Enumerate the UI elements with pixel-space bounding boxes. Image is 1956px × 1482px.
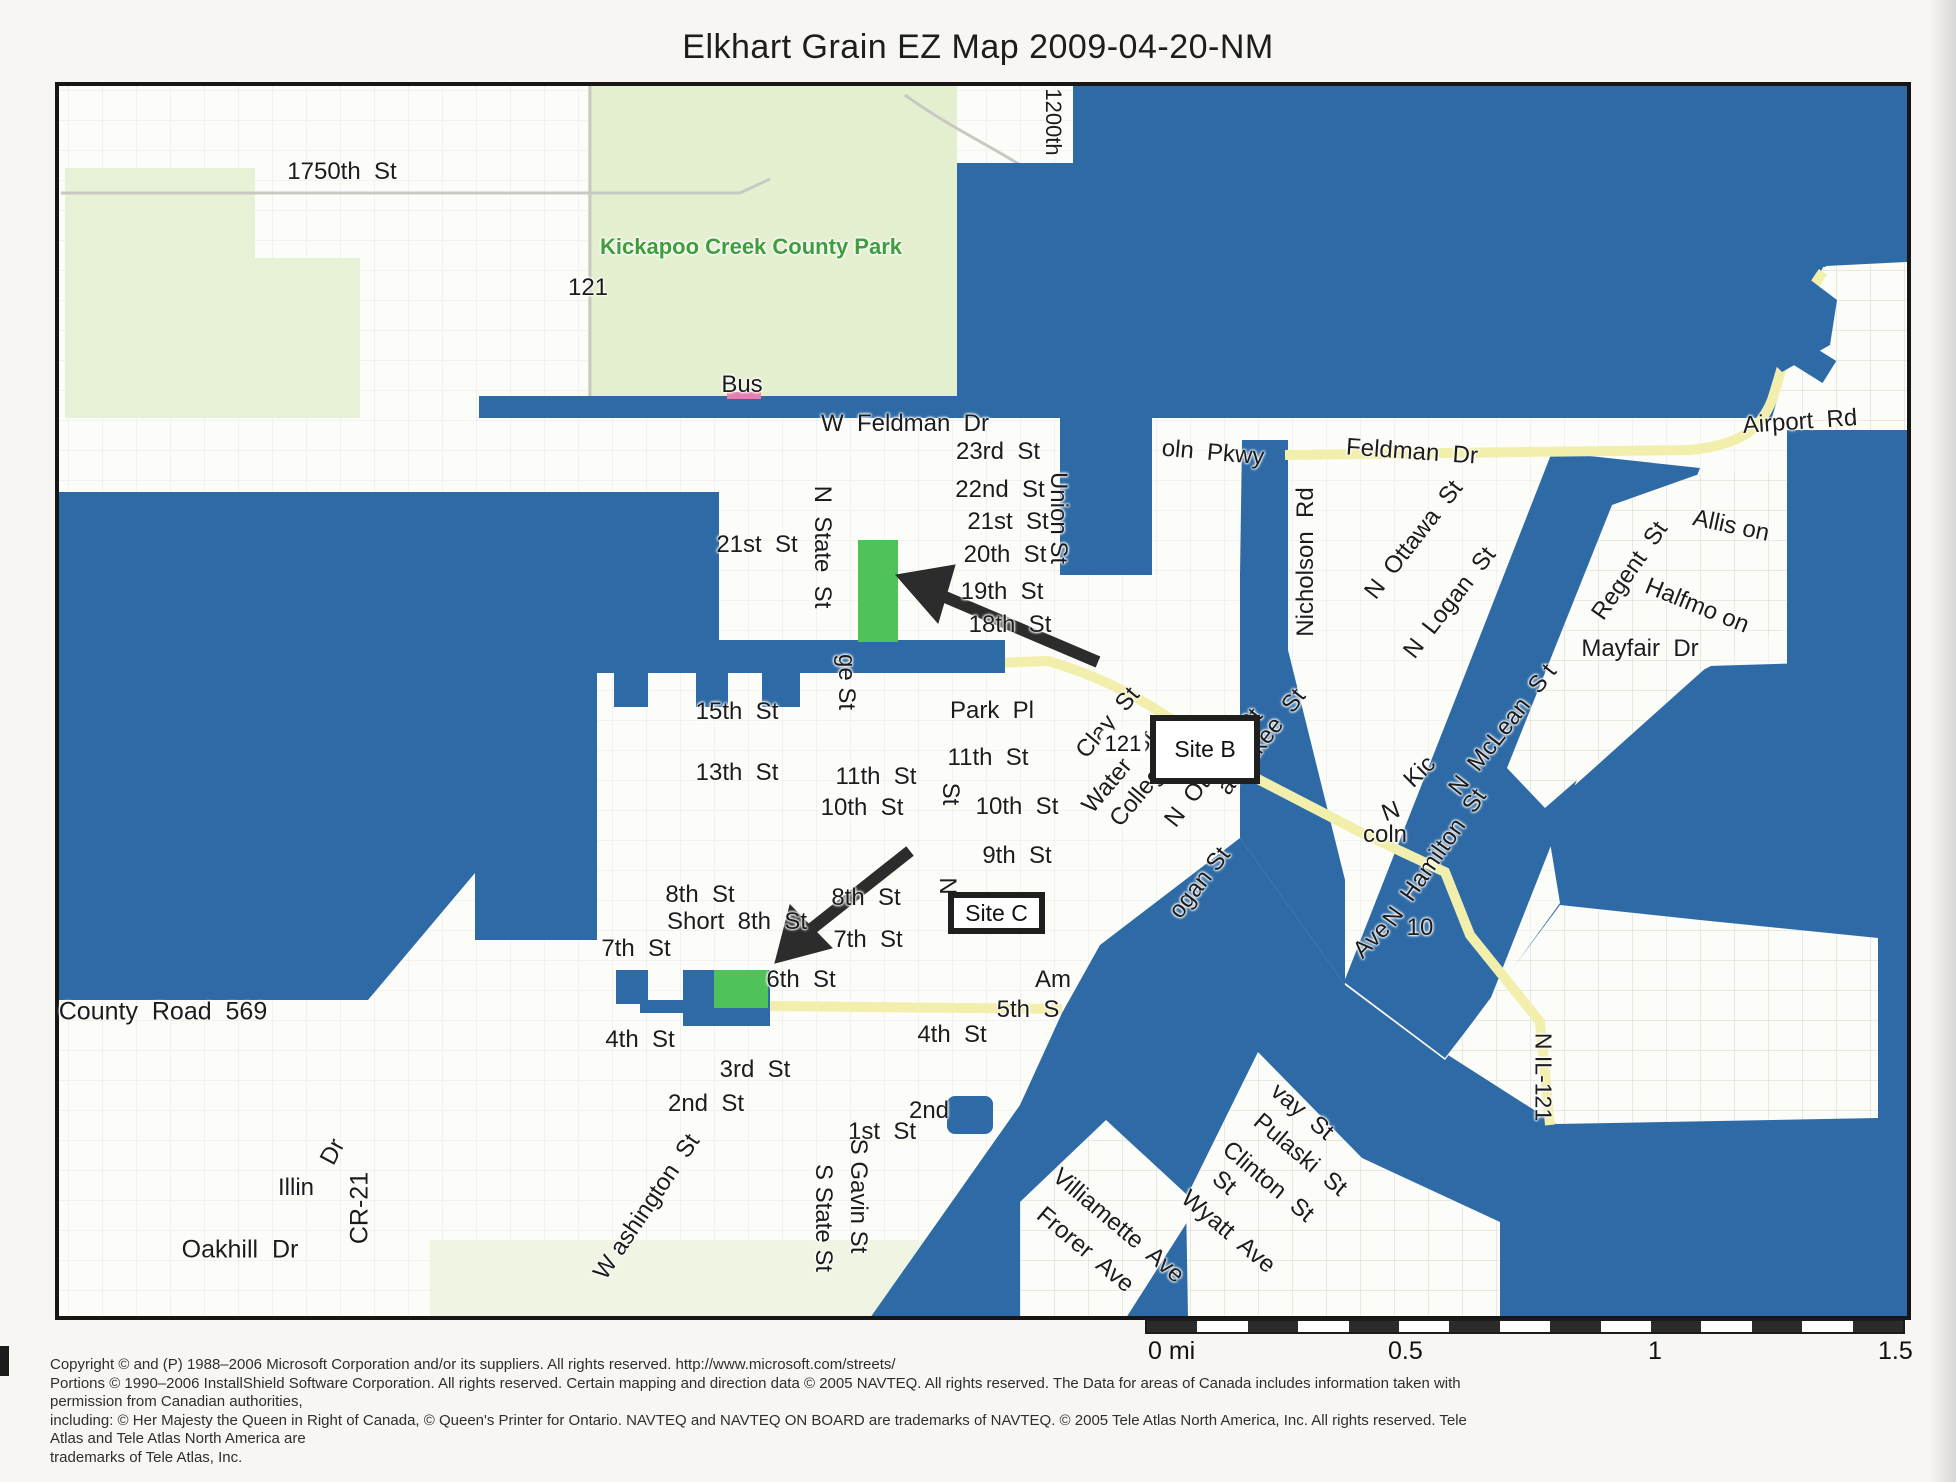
street-label: 21st St xyxy=(716,533,797,557)
street-label: 15th St xyxy=(696,700,779,724)
street-label: N State St xyxy=(810,486,834,609)
street-label: 11th St xyxy=(836,765,917,789)
street-label: 5th S xyxy=(997,998,1060,1022)
street-label: 1750th St xyxy=(287,160,396,184)
street-label: County Road 569 xyxy=(59,1000,267,1025)
page-title: Elkhart Grain EZ Map 2009-04-20-NM xyxy=(0,28,1956,67)
copyright-line: including: © Her Majesty the Queen in Ri… xyxy=(50,1412,1480,1449)
scale-cell xyxy=(1147,1321,1197,1332)
street-label: 9th St xyxy=(982,844,1051,868)
street-label: N IL-121 xyxy=(1532,1033,1555,1121)
street-label: 1200th xyxy=(1042,88,1064,155)
scale-bar xyxy=(1145,1319,1905,1334)
page-curl-shadow xyxy=(1930,0,1956,1482)
scale-cell xyxy=(1248,1321,1298,1332)
street-label: 13th St xyxy=(696,761,779,785)
street-label: Kickapoo Creek County Park xyxy=(600,236,902,258)
copyright-line: trademarks of Tele Atlas, Inc. xyxy=(50,1449,1480,1468)
scale-bar-cells xyxy=(1145,1319,1905,1334)
site-b-area xyxy=(858,540,898,642)
copyright-text: Copyright © and (P) 1988–2006 Microsoft … xyxy=(50,1356,1480,1467)
street-label: 19th St xyxy=(961,580,1044,604)
copyright-line: Portions © 1990–2006 InstallShield Softw… xyxy=(50,1375,1480,1412)
street-label: 10th St xyxy=(976,795,1059,819)
street-label: 2nd St xyxy=(668,1092,744,1116)
street-label: 8th St xyxy=(831,886,900,910)
street-label: Short 8th St xyxy=(667,910,807,934)
street-label: Mayfair Dr xyxy=(1581,637,1698,661)
street-label: 23rd St xyxy=(956,440,1040,464)
street-label: 10 xyxy=(1407,916,1434,940)
street-label: 18th St xyxy=(969,613,1052,637)
scale-cell xyxy=(1601,1321,1651,1332)
street-label: CR-21 xyxy=(348,1172,373,1244)
street-label: 121 xyxy=(568,276,608,300)
street-label: 3rd St xyxy=(720,1058,791,1082)
street-label: 22nd St xyxy=(955,478,1044,502)
street-label: St xyxy=(938,783,962,806)
street-label: 4th St xyxy=(917,1023,986,1047)
scale-cell xyxy=(1349,1321,1399,1332)
street-label: ge St xyxy=(834,654,858,710)
scan-artifact xyxy=(0,1346,9,1376)
street-label: W Feldman Dr xyxy=(821,412,989,436)
street-label: 4th St xyxy=(605,1028,674,1052)
street-label: 10th St xyxy=(821,796,904,820)
scanned-map-page: Elkhart Grain EZ Map 2009-04-20-NM xyxy=(0,0,1956,1482)
scale-label: 1 xyxy=(1648,1337,1662,1366)
site-b-label: Site B xyxy=(1174,736,1235,763)
map-canvas: 1750th St121Kickapoo Creek County ParkBu… xyxy=(55,82,1911,1320)
street-label: Illin xyxy=(278,1176,314,1200)
scale-label: 1.5 xyxy=(1878,1337,1913,1366)
street-label: Bus xyxy=(721,373,762,397)
street-label: 11th St xyxy=(948,746,1029,770)
scale-cell xyxy=(1197,1321,1247,1332)
scale-cell xyxy=(1399,1321,1449,1332)
street-label: 6th St xyxy=(766,968,835,992)
street-label: Am xyxy=(1035,968,1071,992)
site-c-area xyxy=(714,970,768,1008)
site-c-callout: Site C xyxy=(948,892,1045,934)
street-label: 7th St xyxy=(833,928,902,952)
street-label: 8th St xyxy=(665,883,734,907)
site-c-label: Site C xyxy=(965,900,1028,927)
scale-cell xyxy=(1853,1321,1903,1332)
street-label: 20th St xyxy=(964,543,1047,567)
scale-cell xyxy=(1752,1321,1802,1332)
scale-cell xyxy=(1298,1321,1348,1332)
copyright-line: Copyright © and (P) 1988–2006 Microsoft … xyxy=(50,1356,1480,1375)
street-label: 21st St xyxy=(967,510,1048,534)
site-b-callout: Site B xyxy=(1150,715,1260,784)
route-121-shield: 121 xyxy=(1101,730,1145,758)
street-label: Nicholson Rd xyxy=(1294,487,1318,636)
route-121-label: 121 xyxy=(1105,731,1142,757)
street-label: 7th St xyxy=(601,937,670,961)
street-label: Oakhill Dr xyxy=(182,1238,299,1263)
scale-cell xyxy=(1550,1321,1600,1332)
scale-cell xyxy=(1802,1321,1852,1332)
scale-cell xyxy=(1449,1321,1499,1332)
street-label: Union St xyxy=(1046,472,1070,564)
scale-cell xyxy=(1500,1321,1550,1332)
street-label: S Gavin St xyxy=(846,1139,870,1254)
scale-cell xyxy=(1701,1321,1751,1332)
street-label: Park Pl xyxy=(950,699,1034,723)
scale-cell xyxy=(1651,1321,1701,1332)
street-label: coln xyxy=(1363,823,1407,847)
street-label: S State St xyxy=(811,1164,835,1272)
